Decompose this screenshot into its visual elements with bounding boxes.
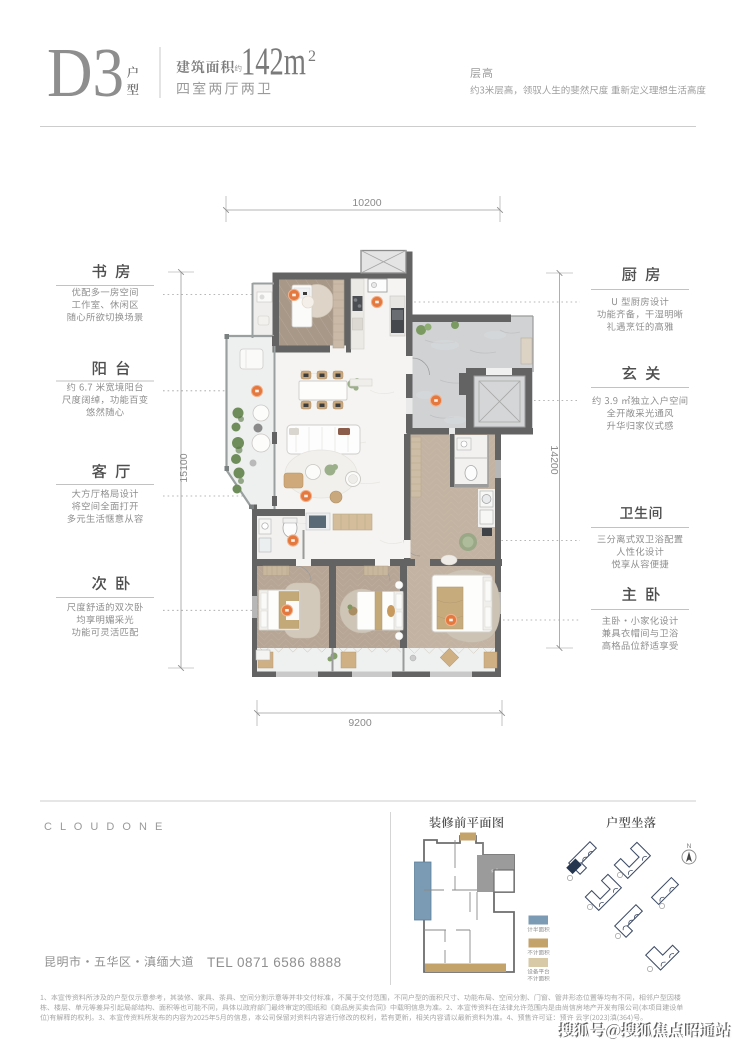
svg-text:15100: 15100 [178, 453, 190, 482]
svg-text:9200: 9200 [348, 717, 372, 729]
svg-text:142m: 142m [241, 40, 306, 83]
svg-text:14200: 14200 [548, 445, 560, 474]
svg-text:10200: 10200 [352, 197, 381, 209]
svg-text:2: 2 [308, 48, 316, 65]
svg-text:C L O U D O N E: C L O U D O N E [44, 821, 165, 833]
svg-text:TEL 0871 6586 8888: TEL 0871 6586 8888 [207, 955, 342, 970]
svg-text:N: N [687, 843, 692, 850]
svg-text:D3: D3 [47, 35, 124, 112]
